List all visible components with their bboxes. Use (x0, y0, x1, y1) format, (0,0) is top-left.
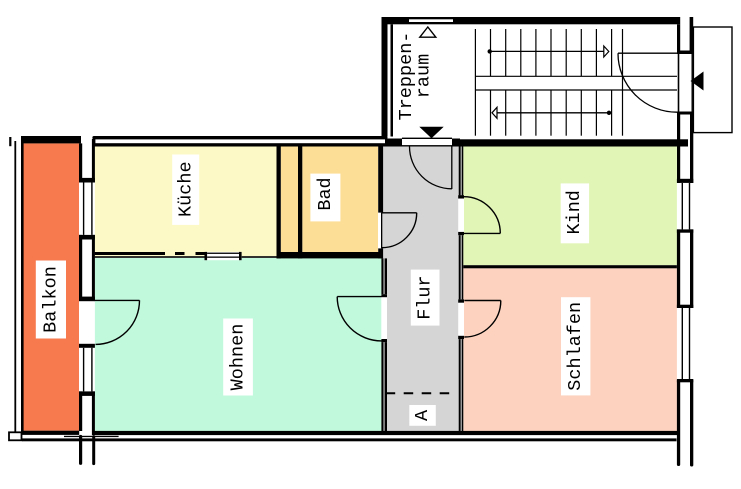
svg-text:Balkon: Balkon (41, 266, 62, 333)
svg-text:A: A (412, 409, 433, 421)
svg-text:Wohnen: Wohnen (228, 324, 249, 391)
svg-text:Bad: Bad (315, 177, 336, 210)
svg-text:raum: raum (414, 54, 435, 98)
svg-text:Kind: Kind (564, 190, 585, 234)
svg-text:Küche: Küche (176, 161, 197, 217)
svg-text:Flur: Flur (415, 275, 436, 319)
svg-text:Schlafen: Schlafen (565, 302, 586, 391)
